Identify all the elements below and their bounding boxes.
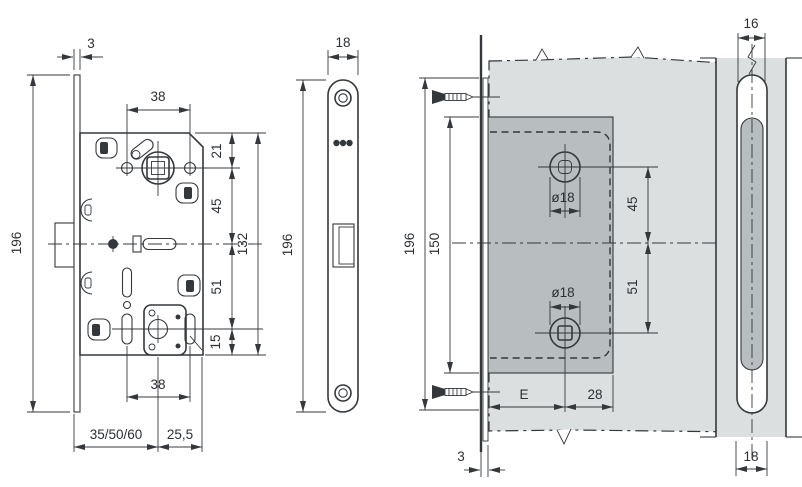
- latch-bolt: [55, 223, 74, 267]
- door-edge-view: 16 18: [700, 16, 802, 476]
- faceplate-front-view: 18 196: [280, 35, 358, 412]
- dim-label-center-to-spindle: 51: [209, 279, 224, 294]
- dim-label-spindle-to-bottom: 15: [208, 334, 223, 349]
- dim-label-upper-to-center: 45: [625, 196, 640, 211]
- faceplate-edge-strip: [483, 78, 488, 441]
- dim-label-door-faceplate-thickness: 3: [457, 449, 465, 464]
- dim-backset-chain: 35/50/60 25,5: [74, 357, 202, 452]
- dim-label-mortise-height: 150: [427, 233, 442, 256]
- dim-label-handle-to-center: 45: [209, 198, 224, 213]
- lock-body-outline: [55, 75, 203, 412]
- door-mounting-view: ø18 ø18 45 51: [402, 35, 768, 477]
- dim-label-backset-E: E: [519, 387, 528, 402]
- dim-label-faceplate-width: 18: [335, 35, 350, 50]
- dim-door-faceplate-thickness: 3: [457, 445, 505, 477]
- dim-faceplate-width: 18: [328, 35, 358, 75]
- lock-dimension-drawing: 3 196 38: [0, 0, 802, 487]
- dim-label-faceplate-height: 196: [280, 234, 295, 257]
- dim-label-backset-options: 35/50/60: [90, 427, 143, 442]
- dim-label-door-faceplate-height: 196: [402, 233, 417, 256]
- dim-label-top-to-handle: 21: [209, 143, 224, 158]
- dim-label-top-hole-spacing: 38: [150, 89, 165, 104]
- dim-label-rear-depth: 25,5: [167, 427, 193, 442]
- dim-label-rear-distance: 28: [587, 387, 602, 402]
- dim-slot-width-bottom: 18: [736, 441, 767, 476]
- faceplate-strip: [74, 75, 80, 412]
- magnet-indicator-dots: [333, 140, 352, 146]
- dim-mortise-height: 150: [427, 117, 479, 373]
- dim-label-slot-width: 16: [743, 16, 758, 31]
- dim-label-faceplate-slot-width: 18: [743, 449, 758, 464]
- dim-faceplate-thickness: 3: [57, 36, 103, 70]
- dim-label-center-to-lower: 51: [625, 279, 640, 294]
- dim-label-faceplate-thickness: 3: [87, 36, 95, 51]
- dim-label-overall-height: 196: [9, 232, 24, 255]
- dim-label-upper-hole-diameter: ø18: [551, 190, 574, 205]
- technical-drawing-page: 3 196 38: [0, 0, 802, 487]
- dim-label-lower-hole-diameter: ø18: [551, 285, 574, 300]
- lock-body-front-view: 3 196 38: [9, 36, 266, 452]
- dim-faceplate-height: 196: [280, 80, 326, 412]
- dim-label-body-height: 132: [235, 233, 250, 256]
